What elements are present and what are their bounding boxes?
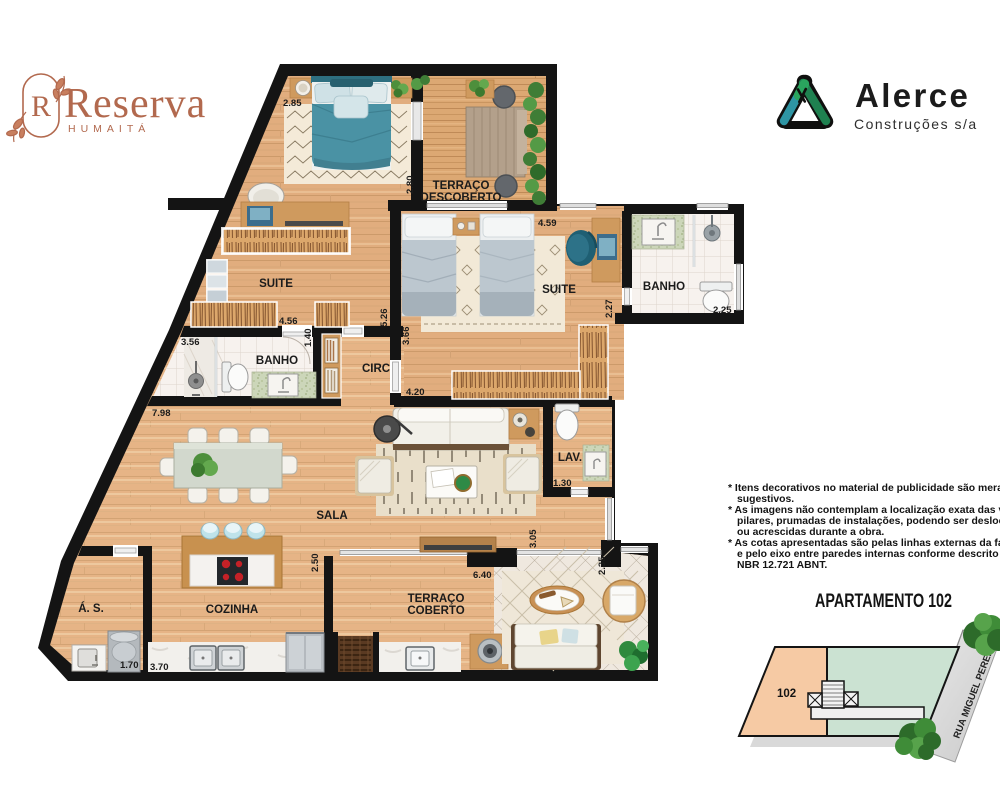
svg-text:6.40: 6.40	[473, 570, 492, 581]
svg-text:Á. S.: Á. S.	[78, 602, 104, 615]
svg-text:102: 102	[777, 688, 796, 700]
svg-text:2.35: 2.35	[597, 556, 608, 575]
svg-text:e pelo eixo entre paredes inte: e pelo eixo entre paredes internas confo…	[737, 549, 1000, 560]
svg-text:3.66: 3.66	[401, 327, 412, 346]
svg-text:4.59: 4.59	[538, 218, 557, 229]
svg-text:3.70: 3.70	[150, 662, 169, 673]
svg-text:2.85: 2.85	[283, 98, 302, 109]
svg-text:4.56: 4.56	[279, 316, 298, 327]
svg-text:1.70: 1.70	[120, 660, 139, 671]
svg-text:2.25: 2.25	[713, 305, 732, 316]
svg-text:Construções s/a: Construções s/a	[854, 116, 978, 132]
svg-text:pilares, prumadas de instalaçõ: pilares, prumadas de instalações, podend…	[737, 516, 1000, 527]
svg-text:7.98: 7.98	[152, 408, 171, 419]
svg-text:ou acrescidas durante a obra.: ou acrescidas durante a obra.	[737, 527, 884, 538]
svg-text:COBERTO: COBERTO	[407, 605, 464, 617]
svg-text:5.26: 5.26	[379, 309, 390, 328]
svg-text:* As cotas apresentadas são pe: * As cotas apresentadas são pelas linhas…	[728, 538, 1000, 549]
svg-text:SUITE: SUITE	[542, 284, 576, 296]
svg-text:DESCOBERTO: DESCOBERTO	[421, 192, 502, 204]
svg-text:BANHO: BANHO	[643, 281, 685, 293]
svg-text:Reserva: Reserva	[64, 81, 206, 127]
svg-text:BANHO: BANHO	[256, 355, 298, 367]
svg-text:4.20: 4.20	[406, 387, 425, 398]
svg-text:1.30: 1.30	[553, 478, 572, 489]
svg-text:2.27: 2.27	[604, 300, 615, 319]
svg-text:LAV.: LAV.	[558, 452, 582, 464]
svg-text:CIRC: CIRC	[362, 363, 390, 375]
svg-text:3.05: 3.05	[528, 529, 539, 548]
svg-text:SUITE: SUITE	[259, 278, 293, 290]
svg-text:2.50: 2.50	[310, 554, 321, 573]
svg-text:R: R	[31, 90, 51, 123]
svg-text:COZINHA: COZINHA	[206, 604, 258, 616]
svg-text:HUMAITÁ: HUMAITÁ	[68, 122, 150, 135]
svg-text:NBR 12.721 ABNT.: NBR 12.721 ABNT.	[737, 560, 827, 571]
svg-text:2.80: 2.80	[405, 176, 416, 195]
svg-text:* As imagens não contemplam a: * As imagens não contemplam a localizaçã…	[728, 505, 1000, 516]
svg-text:Alerce: Alerce	[855, 77, 970, 114]
svg-text:3.56: 3.56	[181, 337, 200, 348]
svg-text:APARTAMENTO 102: APARTAMENTO 102	[815, 591, 952, 612]
svg-text:sugestivos.: sugestivos.	[737, 494, 794, 505]
svg-text:1.40: 1.40	[303, 329, 314, 348]
svg-text:TERRAÇO: TERRAÇO	[408, 593, 465, 605]
svg-text:* Itens decorativos no materia: * Itens decorativos no material de publi…	[728, 483, 1000, 494]
svg-text:SALA: SALA	[316, 510, 347, 522]
svg-text:TERRAÇO: TERRAÇO	[433, 180, 490, 192]
